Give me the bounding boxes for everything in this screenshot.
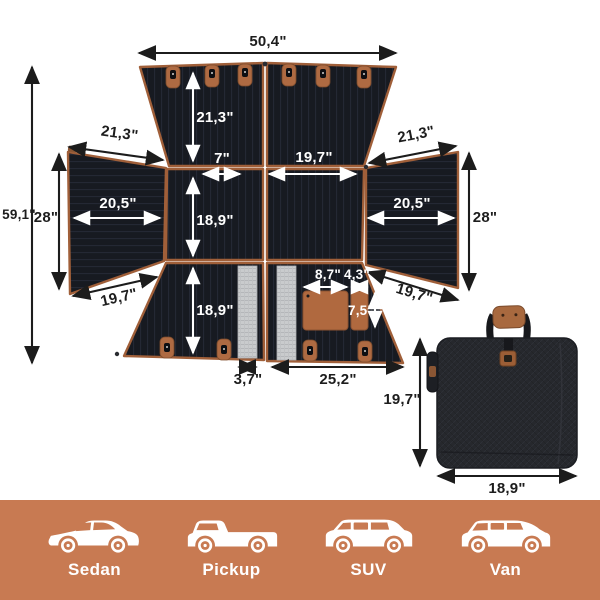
- suv-icon: [321, 511, 417, 557]
- diagram-canvas: 50,4" 59,1" 21,3" 21,3" 28" 28": [0, 0, 600, 500]
- svg-text:18,9": 18,9": [196, 212, 233, 229]
- svg-text:18,9": 18,9": [488, 480, 525, 497]
- svg-text:25,2": 25,2": [319, 371, 356, 388]
- mesh-strip-right: [277, 266, 296, 360]
- leather-tab: [238, 64, 252, 86]
- leather-tab: [303, 340, 317, 361]
- svg-text:3,7": 3,7": [234, 371, 263, 388]
- vehicle-label: Pickup: [202, 560, 260, 580]
- leather-tab: [166, 66, 180, 88]
- svg-text:19,7": 19,7": [383, 391, 420, 408]
- dim-bottom-panel-width: 25,2": [272, 367, 403, 388]
- vehicle-label: Sedan: [68, 560, 121, 580]
- svg-text:18,9": 18,9": [196, 302, 233, 319]
- bag-side-handle: [427, 352, 438, 392]
- dim-bag-width: 18,9": [438, 476, 576, 497]
- vehicle-label: SUV: [350, 560, 386, 580]
- vehicle-item-sedan: Sedan: [47, 511, 143, 580]
- svg-text:20,5": 20,5": [99, 195, 136, 212]
- leather-tab: [357, 66, 371, 88]
- leather-tab: [217, 339, 231, 360]
- dim-left-flap-height: 28": [34, 154, 59, 289]
- leather-tab: [160, 337, 174, 358]
- mesh-strip-left: [238, 266, 257, 358]
- leather-tab: [205, 65, 219, 87]
- bag-handle-leather-wrap: [493, 305, 526, 328]
- svg-text:21,3": 21,3": [196, 109, 233, 126]
- folded-carry-bag: [427, 305, 577, 468]
- svg-text:19,7": 19,7": [394, 280, 435, 307]
- leather-tab: [316, 65, 330, 87]
- svg-text:19,7": 19,7": [295, 149, 332, 166]
- vehicle-item-van: Van: [458, 511, 554, 580]
- vehicle-item-pickup: Pickup: [184, 511, 280, 580]
- mat-panels: [68, 63, 458, 363]
- svg-text:28": 28": [473, 209, 497, 226]
- side-flap-left: [68, 152, 166, 294]
- bag-buckle: [500, 351, 516, 366]
- leather-tab: [282, 64, 296, 86]
- pickup-icon: [184, 511, 280, 557]
- dimension-diagram: 50,4" 59,1" 21,3" 21,3" 28" 28": [0, 0, 600, 500]
- dim-mesh-strip-width: 3,7": [234, 367, 263, 388]
- pocket-large: [303, 291, 348, 330]
- vehicle-compatibility-bar: Sedan Pickup: [0, 500, 600, 600]
- van-icon: [458, 511, 554, 557]
- svg-text:21,3": 21,3": [396, 123, 436, 147]
- svg-text:7": 7": [214, 150, 230, 167]
- sedan-icon: [47, 511, 143, 557]
- svg-text:28": 28": [34, 209, 58, 226]
- dim-overall-height: 59,1": [2, 67, 36, 363]
- seat-panel-right: [267, 169, 364, 260]
- svg-text:8,7": 8,7": [315, 267, 341, 282]
- svg-text:4,3": 4,3": [344, 267, 370, 282]
- product-dimension-sheet: 50,4" 59,1" 21,3" 21,3" 28" 28": [0, 0, 600, 600]
- leather-tab: [358, 341, 372, 362]
- svg-text:59,1": 59,1": [2, 207, 36, 222]
- svg-text:7,5": 7,5": [348, 303, 374, 318]
- dim-top-width: 50,4": [139, 33, 396, 53]
- vehicle-label: Van: [490, 560, 521, 580]
- dim-right-flap-height: 28": [469, 153, 497, 290]
- svg-text:20,5": 20,5": [393, 195, 430, 212]
- svg-text:50,4": 50,4": [249, 33, 286, 50]
- side-flap-right: [366, 152, 458, 288]
- vehicle-item-suv: SUV: [321, 511, 417, 580]
- svg-text:21,3": 21,3": [100, 123, 139, 145]
